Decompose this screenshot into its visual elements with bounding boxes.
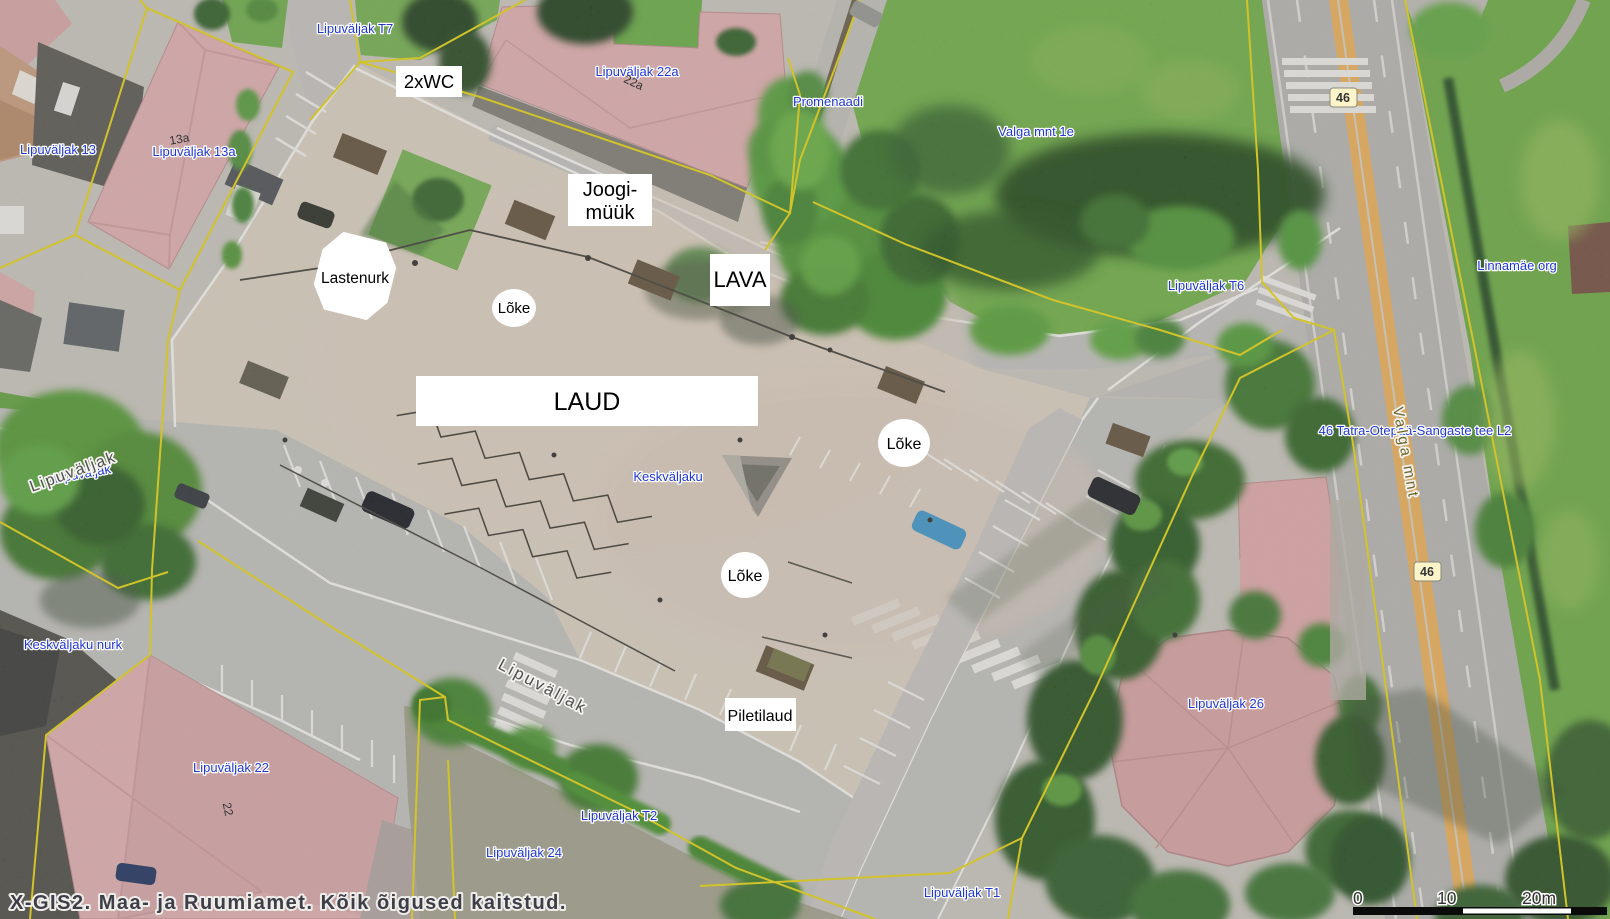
svg-text:Lipuväljak 26: Lipuväljak 26 [1188,696,1264,711]
svg-text:Lipuväljak 22: Lipuväljak 22 [193,760,269,775]
svg-text:46: 46 [1336,91,1350,105]
svg-text:Promenaadi: Promenaadi [793,94,863,109]
svg-text:Lastenurk: Lastenurk [321,270,389,287]
svg-text:46: 46 [1420,565,1434,579]
svg-text:0: 0 [1353,888,1363,908]
svg-text:20m: 20m [1522,888,1556,908]
svg-text:Lipuväljak 24: Lipuväljak 24 [486,845,562,860]
svg-text:Lipuväljak T7: Lipuväljak T7 [317,21,393,36]
svg-text:müük: müük [586,202,636,224]
svg-text:LAUD: LAUD [554,388,621,416]
svg-text:46 Tatra-Otepää-Sangaste tee L: 46 Tatra-Otepää-Sangaste tee L2 [1319,423,1512,438]
svg-text:Lipuväljak T6: Lipuväljak T6 [1168,278,1244,293]
svg-text:X-GIS2. Maa- ja Ruumiamet. Kõi: X-GIS2. Maa- ja Ruumiamet. Kõik õigused … [10,892,567,914]
svg-text:LAVA: LAVA [714,267,767,292]
svg-text:Lipuväljak 13a: Lipuväljak 13a [152,144,236,159]
svg-text:Lipuväljak T1: Lipuväljak T1 [924,885,1000,900]
svg-text:Piletilaud: Piletilaud [728,708,793,725]
svg-text:Lõke: Lõke [498,300,531,317]
svg-text:Valga mnt 1e: Valga mnt 1e [998,124,1074,139]
svg-text:Lipuväljak 13: Lipuväljak 13 [20,142,96,157]
svg-text:10: 10 [1437,888,1457,908]
svg-text:Linnamäe org: Linnamäe org [1477,258,1557,273]
svg-text:Joogi-: Joogi- [583,179,637,201]
svg-text:Lipuväljak T2: Lipuväljak T2 [581,808,657,823]
svg-text:Lõke: Lõke [887,436,922,453]
svg-text:Lõke: Lõke [728,568,763,585]
svg-text:2xWC: 2xWC [404,71,454,92]
svg-text:Keskväljaku nurk: Keskväljaku nurk [24,637,123,652]
svg-text:Keskväljaku: Keskväljaku [633,469,702,484]
